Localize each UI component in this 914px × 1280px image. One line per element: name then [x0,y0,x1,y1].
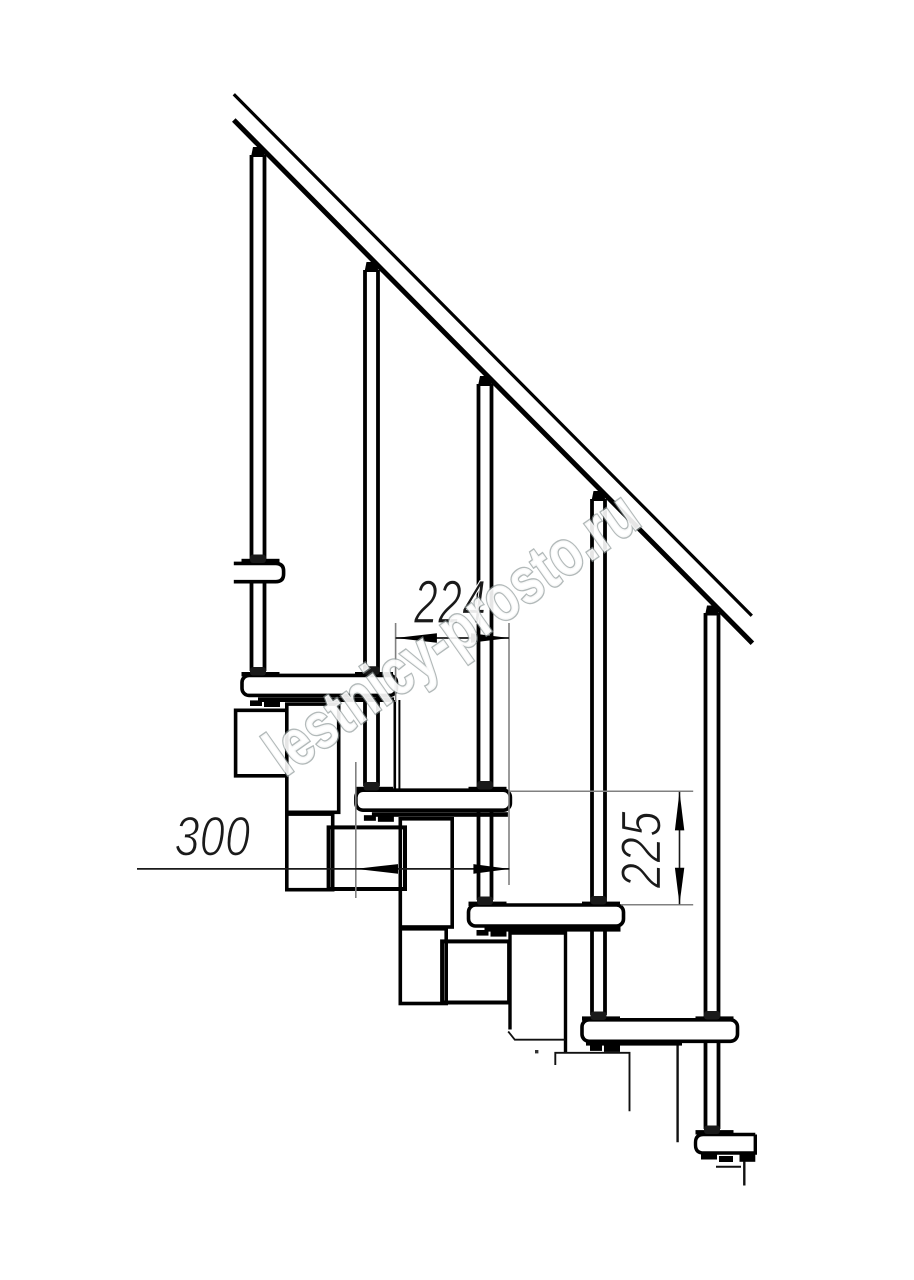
svg-text:225: 225 [608,811,672,889]
svg-text:300: 300 [175,805,251,868]
